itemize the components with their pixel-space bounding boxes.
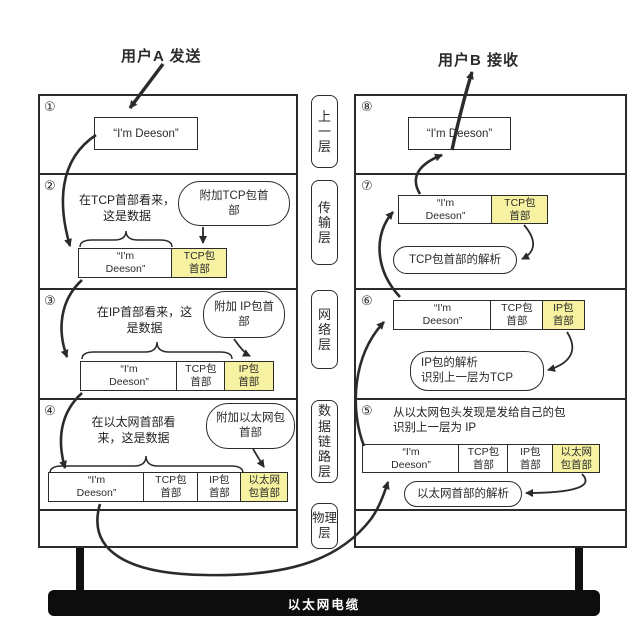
step-number-7: ⑦ xyxy=(361,179,373,192)
layer-label-physical: 物理层 xyxy=(311,503,338,549)
right-divider-4 xyxy=(354,509,627,511)
right-divider-3 xyxy=(354,398,627,400)
cable-post-left xyxy=(76,548,84,592)
right-divider-2 xyxy=(354,288,627,290)
sender-title: 用户A 发送 xyxy=(121,45,201,66)
layer-label-network: 网络层 xyxy=(311,290,338,369)
cable-post-right xyxy=(575,548,583,592)
step-number-2: ② xyxy=(44,179,56,192)
callout-parse-eth-header: 以太网首部的解析 xyxy=(404,481,522,507)
message-box-step8: “I'm Deeson” xyxy=(408,117,511,150)
packet-step3: “I'm Deeson” TCP包 首部 IP包 首部 xyxy=(80,361,274,391)
callout-parse-ip-header: IP包的解析 识别上一层为TCP xyxy=(410,351,544,391)
packet-cell-data: “I'm Deeson” xyxy=(393,300,492,330)
callout-add-eth-header: 附加以太网包 首部 xyxy=(206,403,295,449)
packet-cell-data: “I'm Deeson” xyxy=(80,361,178,391)
ethernet-cable-label: 以太网电缆 xyxy=(288,594,361,613)
packet-cell-tcp-header: TCP包 首部 xyxy=(143,472,198,502)
callout-parse-tcp-header: TCP包首部的解析 xyxy=(393,246,517,274)
callout-add-ip-header: 附加 IP包首 部 xyxy=(203,291,285,338)
receiver-title: 用户B 接收 xyxy=(438,49,519,70)
packet-cell-eth-header: 以太网 包首部 xyxy=(552,444,600,473)
packet-step5: “I'm Deeson” TCP包 首部 IP包 首部 以太网 包首部 xyxy=(362,444,600,473)
message-box-step1: “I'm Deeson” xyxy=(94,117,198,150)
packet-cell-data: “I'm Deeson” xyxy=(48,472,145,502)
step-number-4: ④ xyxy=(44,404,56,417)
note-step3: 在IP首部看来，这 是数据 xyxy=(72,305,217,337)
step-number-8: ⑧ xyxy=(361,100,373,113)
left-divider-4 xyxy=(38,509,298,511)
note-step5: 从以太网包头发现是发给自己的包 识别上一层为 IP xyxy=(393,406,583,436)
step-number-1: ① xyxy=(44,100,56,113)
left-divider-3 xyxy=(38,398,298,400)
packet-cell-tcp-header: TCP包 首部 xyxy=(458,444,508,473)
layer-label-datalink: 数据链路层 xyxy=(311,400,338,483)
packet-cell-ip-header: IP包 首部 xyxy=(542,300,585,330)
left-divider-1 xyxy=(38,173,298,175)
packet-step6: “I'm Deeson” TCP包 首部 IP包 首部 xyxy=(393,300,585,330)
packet-cell-ip-header: IP包 首部 xyxy=(224,361,274,391)
packet-cell-ip-header: IP包 首部 xyxy=(507,444,554,473)
packet-cell-data: “I'm Deeson” xyxy=(78,248,173,278)
note-step4: 在以太网首部看 来，这是数据 xyxy=(66,415,201,447)
step-number-6: ⑥ xyxy=(361,294,373,307)
right-divider-1 xyxy=(354,173,627,175)
layer-label-upper: 上一层 xyxy=(311,95,338,168)
packet-cell-data: “I'm Deeson” xyxy=(398,195,493,224)
packet-cell-tcp-header: TCP包 首部 xyxy=(491,195,548,224)
packet-cell-tcp-header: TCP包 首部 xyxy=(171,248,227,278)
note-step2: 在TCP首部看来， 这是数据 xyxy=(62,193,192,225)
step-number-5: ⑤ xyxy=(361,404,373,417)
packet-cell-data: “I'm Deeson” xyxy=(362,444,460,473)
layer-label-transport: 传输层 xyxy=(311,180,338,265)
step-number-3: ③ xyxy=(44,294,56,307)
packet-step4: “I'm Deeson” TCP包 首部 IP包 首部 以太网 包首部 xyxy=(48,472,288,502)
packet-cell-tcp-header: TCP包 首部 xyxy=(176,361,225,391)
callout-add-tcp-header: 附加TCP包首 部 xyxy=(178,181,290,226)
packet-cell-eth-header: 以太网 包首部 xyxy=(240,472,288,502)
packet-step7: “I'm Deeson” TCP包 首部 xyxy=(398,195,548,224)
packet-cell-tcp-header: TCP包 首部 xyxy=(490,300,543,330)
packet-step2: “I'm Deeson” TCP包 首部 xyxy=(78,248,227,278)
packet-cell-ip-header: IP包 首部 xyxy=(197,472,242,502)
ethernet-cable: 以太网电缆 xyxy=(48,590,600,616)
left-divider-2 xyxy=(38,288,298,290)
